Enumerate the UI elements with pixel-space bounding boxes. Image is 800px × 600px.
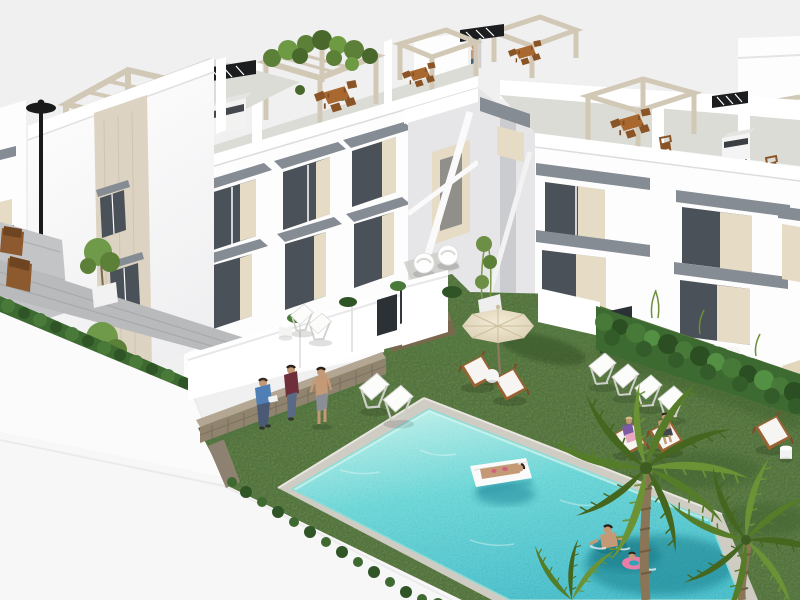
cylinder-stool (779, 446, 793, 463)
render-canvas (0, 0, 800, 600)
egg-chair (413, 253, 435, 278)
roof-divider (216, 57, 226, 134)
cylinder-stool (279, 322, 293, 340)
terrace-gate (377, 294, 397, 336)
egg-chair (437, 245, 459, 270)
architectural-render (0, 0, 800, 600)
